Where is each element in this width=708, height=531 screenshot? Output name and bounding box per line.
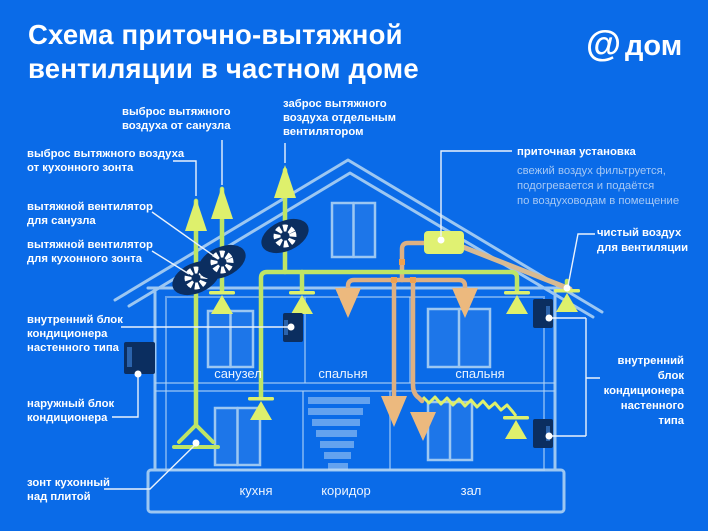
callout-dot [438, 237, 445, 244]
outdoor-ac-unit [124, 342, 155, 374]
svg-text:свежий воздух фильтруется,: свежий воздух фильтруется, [517, 165, 666, 177]
svg-text:внутренний блок: внутренний блок [27, 314, 123, 326]
duct-junction [399, 259, 405, 265]
svg-text:типа: типа [658, 415, 684, 427]
room-label-bathroom: санузел [214, 366, 262, 381]
svg-text:блок: блок [658, 370, 685, 382]
at-sign-icon: @ [586, 23, 621, 64]
svg-text:наружный блок: наружный блок [27, 398, 114, 410]
svg-text:воздуха от санузла: воздуха от санузла [122, 120, 231, 132]
hall-window [428, 402, 472, 460]
svg-text:кондиционера: кондиционера [27, 412, 108, 424]
callout-dot [288, 324, 295, 331]
svg-text:выброс вытяжного: выброс вытяжного [122, 106, 231, 118]
callout-dot [193, 440, 200, 447]
svg-text:приточная установка: приточная установка [517, 146, 636, 158]
svg-text:выброс вытяжного воздуха: выброс вытяжного воздуха [27, 148, 185, 160]
svg-text:кондиционера: кондиционера [604, 385, 685, 397]
room-label-hall: зал [461, 483, 482, 498]
svg-text:настенного: настенного [621, 400, 684, 412]
page-title-line1: Схема приточно-вытяжной [28, 19, 403, 50]
callout-dot [546, 315, 553, 322]
callout-dot [135, 371, 142, 378]
svg-text:внутренний: внутренний [618, 355, 684, 367]
svg-text:вытяжной вентилятор: вытяжной вентилятор [27, 201, 153, 213]
svg-text:от кухонного зонта: от кухонного зонта [27, 162, 134, 174]
svg-text:над плитой: над плитой [27, 491, 91, 503]
room-label-bedroom2: спальня [455, 366, 504, 381]
svg-text:подогревается и подаётся: подогревается и подаётся [517, 180, 654, 192]
svg-text:кондиционера: кондиционера [27, 328, 108, 340]
bathroom-window [208, 311, 253, 367]
svg-text:для кухонного зонта: для кухонного зонта [27, 253, 143, 265]
ventilation-scheme: Схема приточно-вытяжной вентиляции в час… [0, 0, 708, 531]
callout-dot [564, 285, 571, 292]
brand-logo-text: дом [625, 30, 682, 62]
indoor-ac-unit-right-top [533, 299, 553, 328]
svg-text:для санузла: для санузла [27, 215, 96, 227]
duct-junction [410, 277, 416, 283]
svg-text:вентилятором: вентилятором [283, 126, 363, 138]
supply-unit-box [424, 231, 464, 254]
room-label-kitchen: кухня [239, 483, 272, 498]
brand-logo: @ дом [586, 23, 682, 64]
svg-text:вытяжной вентилятор: вытяжной вентилятор [27, 239, 153, 251]
svg-text:по воздуховодам в помещение: по воздуховодам в помещение [517, 195, 679, 207]
svg-text:настенного типа: настенного типа [27, 342, 120, 354]
svg-text:воздуха отдельным: воздуха отдельным [283, 112, 396, 124]
page-title-line2: вентиляции в частном доме [28, 53, 419, 84]
callout-dot [546, 433, 553, 440]
room-label-bedroom1: спальня [318, 366, 367, 381]
svg-text:заброс вытяжного: заброс вытяжного [283, 98, 387, 110]
svg-text:чистый воздух: чистый воздух [597, 227, 682, 239]
bedroom-window [428, 309, 490, 367]
attic-window [332, 203, 375, 257]
svg-text:зонт кухонный: зонт кухонный [27, 477, 110, 489]
room-label-corridor: коридор [321, 483, 371, 498]
duct-junction [391, 277, 397, 283]
svg-text:для вентиляции: для вентиляции [597, 242, 688, 254]
